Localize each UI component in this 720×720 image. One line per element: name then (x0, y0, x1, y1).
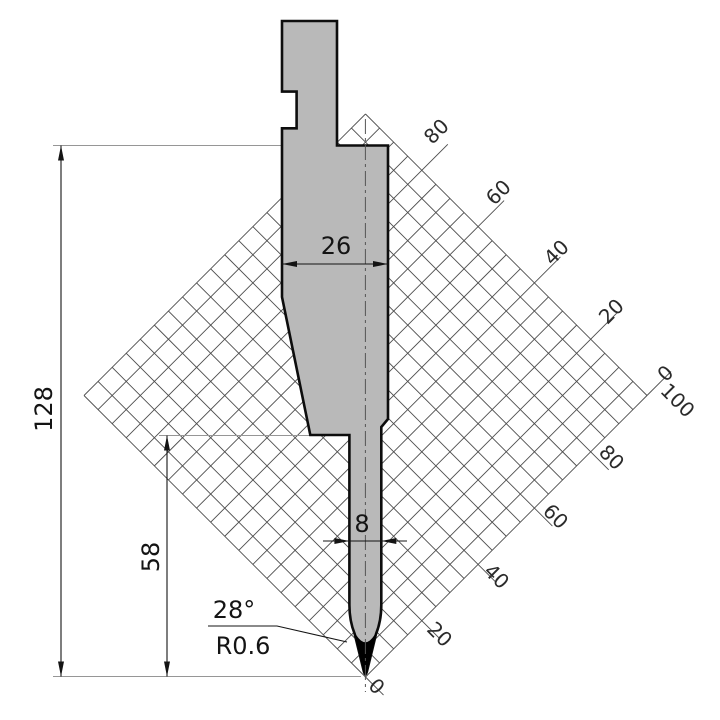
grid-scale-label: 20 (594, 294, 629, 329)
arrow-up-icon (58, 146, 64, 161)
grid-scale-label: 40 (479, 559, 514, 594)
grid-scale-label: 60 (538, 499, 573, 534)
dimension-working-height: 58 (137, 436, 170, 677)
dim-label-working-height: 58 (137, 542, 165, 573)
dim-label-total-height: 128 (30, 386, 58, 432)
arrow-down-icon (58, 662, 64, 677)
drawing-svg: 806040200100806040200 128 58 26 8 (0, 0, 720, 720)
dim-label-shaft-width: 8 (354, 510, 369, 538)
arrow-down-icon (164, 662, 170, 677)
grid-scale-label: 40 (539, 235, 574, 270)
arrow-right-icon (334, 538, 349, 544)
tip-callout: 28° R0.6 (208, 596, 347, 660)
grid-scale-label: 20 (422, 617, 457, 652)
dimension-total-height: 128 (30, 146, 64, 677)
grid-scale-label: 0 (364, 673, 390, 699)
grid-scale-label: 100 (656, 378, 700, 422)
arrow-left-icon (381, 538, 396, 544)
dim-label-tip-angle: 28° (213, 596, 256, 624)
technical-drawing: 806040200100806040200 128 58 26 8 (0, 0, 720, 720)
dim-label-tip-radius: R0.6 (216, 632, 271, 660)
grid-scale-label: 80 (594, 440, 629, 475)
v-scale-grid: 806040200100806040200 (84, 114, 700, 699)
dim-label-body-width: 26 (321, 232, 352, 260)
grid-scale-label: 80 (419, 114, 454, 149)
grid-scale-label: 60 (481, 175, 516, 210)
arrow-up-icon (164, 436, 170, 451)
